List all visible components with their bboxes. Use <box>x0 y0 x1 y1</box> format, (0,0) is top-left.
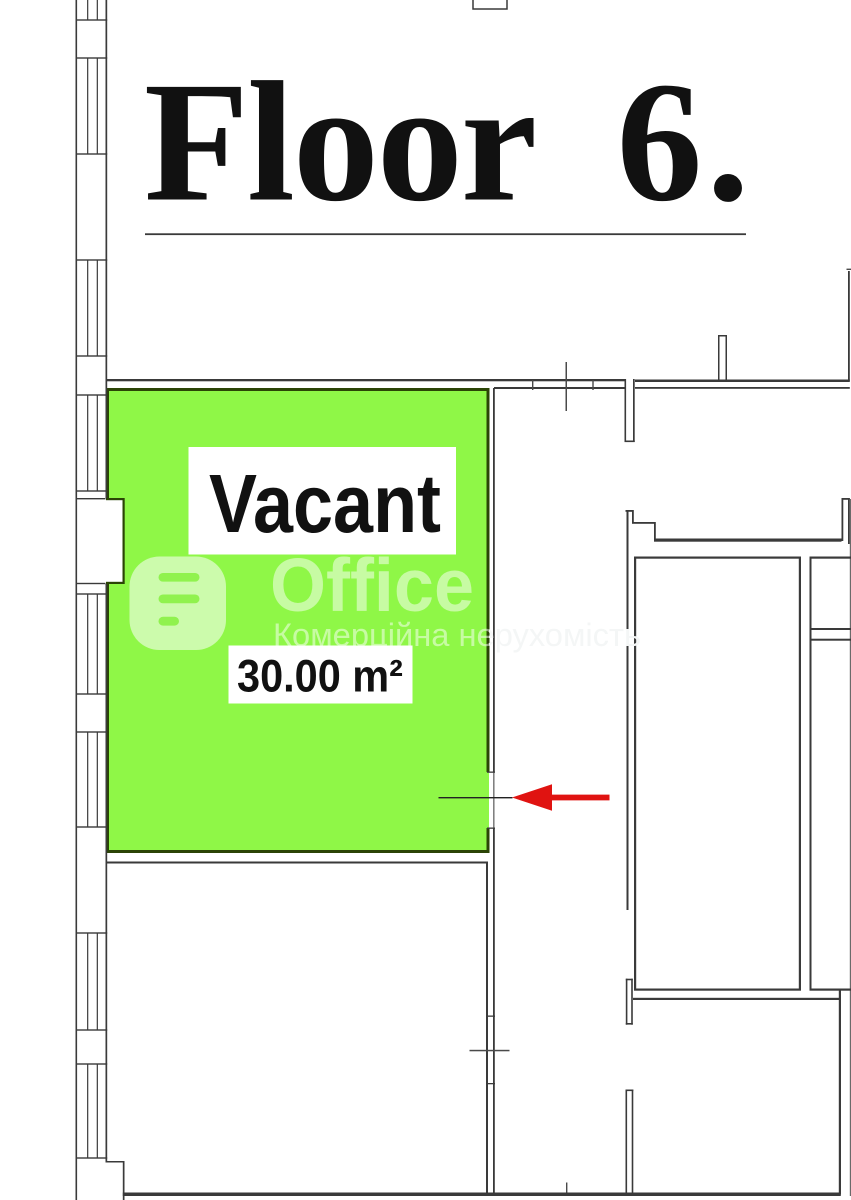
svg-text:Floor: Floor <box>144 48 535 238</box>
svg-text:6.: 6. <box>617 48 754 238</box>
svg-text:Office: Office <box>270 543 474 627</box>
svg-text:30.00 m²: 30.00 m² <box>237 651 403 702</box>
svg-text:Vacant: Vacant <box>209 457 441 550</box>
